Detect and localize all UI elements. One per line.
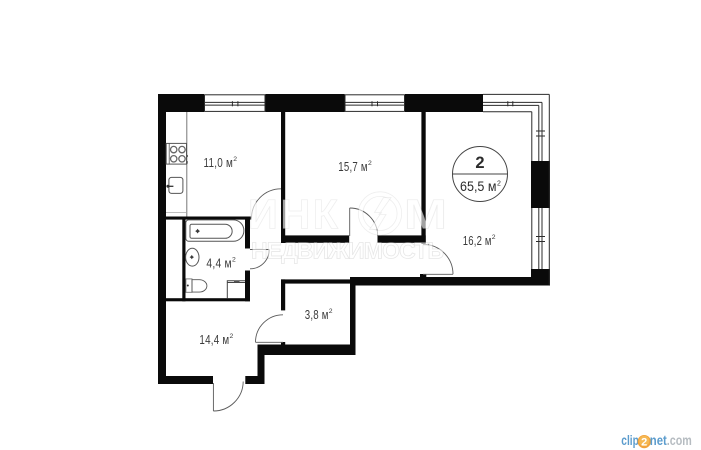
- svg-text:4,4 м: 4,4 м: [206, 257, 232, 271]
- svg-text:2: 2: [475, 154, 484, 172]
- svg-text:net: net: [650, 433, 667, 448]
- svg-text:2: 2: [368, 160, 372, 167]
- svg-text:2: 2: [232, 257, 236, 264]
- svg-text:2: 2: [233, 156, 237, 163]
- svg-text:НЕДВИЖИМОСТЬ: НЕДВИЖИМОСТЬ: [251, 238, 444, 264]
- svg-text:2: 2: [329, 308, 333, 315]
- svg-text:15,7 м: 15,7 м: [338, 160, 368, 174]
- svg-text:2: 2: [230, 333, 234, 340]
- svg-text:2: 2: [641, 437, 647, 449]
- svg-text:2: 2: [492, 234, 496, 241]
- svg-text:ИНК: ИНК: [248, 191, 339, 238]
- svg-text:14,4 м: 14,4 м: [199, 333, 229, 347]
- svg-text:16,2 м: 16,2 м: [463, 234, 492, 248]
- svg-text:65,5 м: 65,5 м: [460, 179, 497, 194]
- svg-text:clip: clip: [621, 433, 639, 448]
- svg-text:2: 2: [497, 181, 501, 188]
- svg-text:.com: .com: [667, 433, 692, 448]
- svg-text:11,0 м: 11,0 м: [204, 156, 234, 170]
- svg-text:3,8 м: 3,8 м: [305, 308, 329, 322]
- svg-text:М: М: [404, 191, 447, 238]
